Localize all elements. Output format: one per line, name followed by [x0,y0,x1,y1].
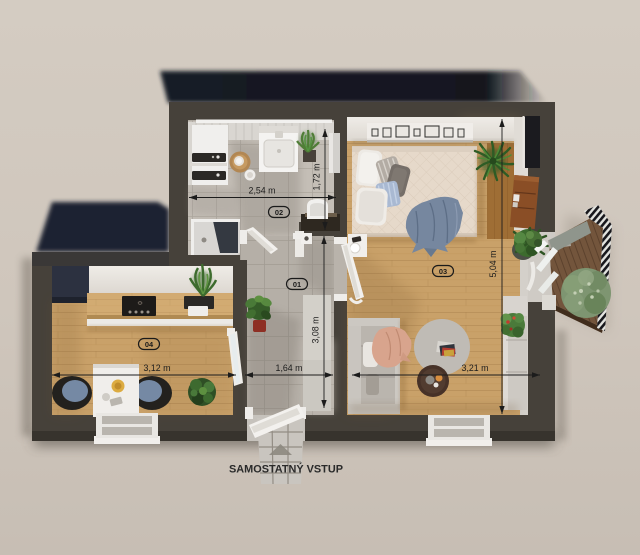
svg-text:3,12 m: 3,12 m [144,363,171,373]
svg-text:1,72 m: 1,72 m [312,164,322,191]
svg-text:3,08 m: 3,08 m [311,317,321,344]
svg-text:04: 04 [145,340,154,349]
svg-text:2,54 m: 2,54 m [249,186,276,196]
svg-text:5,04 m: 5,04 m [488,251,498,278]
svg-text:03: 03 [439,267,447,276]
svg-text:01: 01 [293,280,301,289]
svg-text:3,21 m: 3,21 m [462,363,489,373]
svg-text:SAMOSTATNÝ VSTUP: SAMOSTATNÝ VSTUP [229,463,343,476]
svg-text:02: 02 [275,208,283,217]
svg-text:1,64 m: 1,64 m [276,363,303,373]
